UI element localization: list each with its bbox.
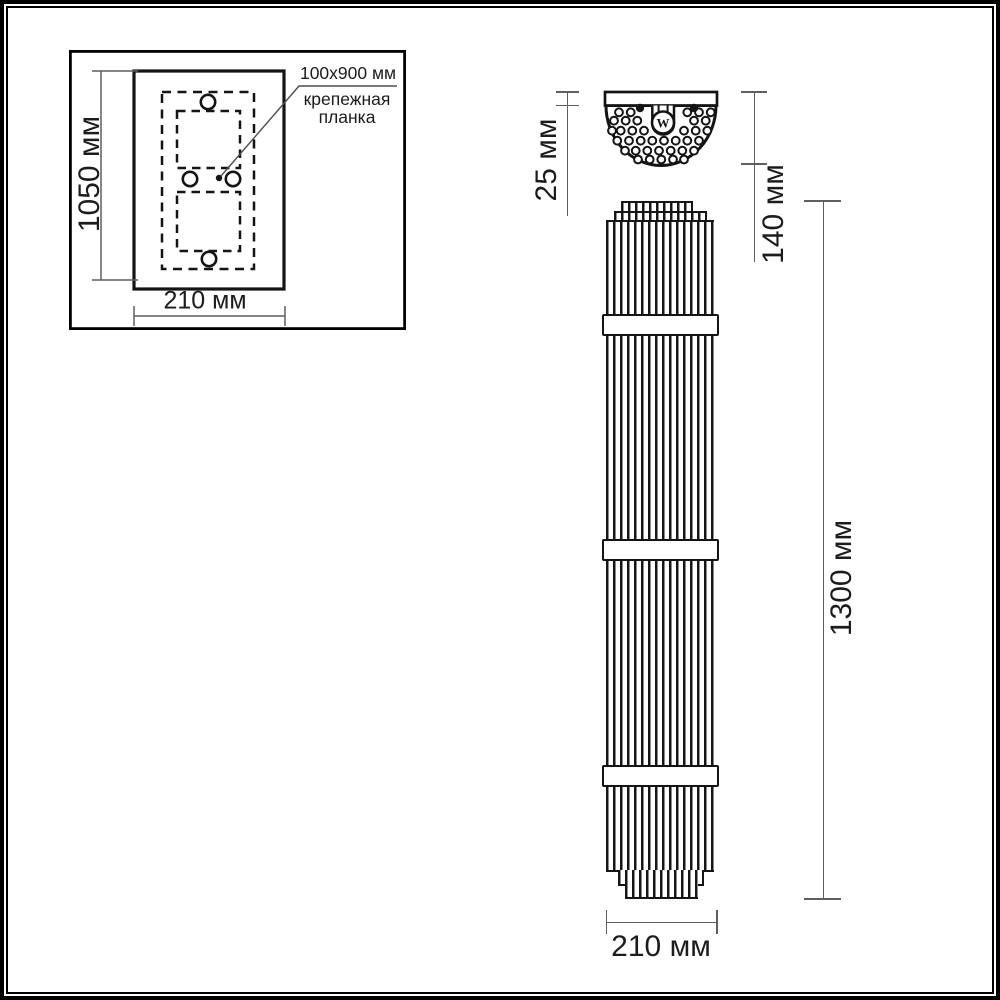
dim-210-line [606,922,718,924]
mounting-hole-top [201,95,215,109]
technical-drawing-canvas: 1050 мм 210 мм 100x900 мм крепежная план… [0,0,1000,1000]
bracket-wall-bar [605,92,717,106]
manufacturer-emblem-letter: W [657,116,670,131]
bracket-top-view-drawing: W [554,84,774,176]
callout-size-label: 100x900 мм [300,64,396,82]
dim-25-line [567,92,569,216]
rod-tier-bottom-2 [625,884,698,899]
callout-name-line2: планка [304,108,391,126]
dim-25-label: 25 мм [530,119,564,202]
screw-right [690,104,698,112]
dim-140-tick-top [741,91,767,93]
dim-1300-line [823,201,825,899]
mounting-hole-middle-right [226,172,240,186]
dim-1300-tick-top [804,200,841,202]
inset-height-label: 1050 мм [73,116,107,232]
band-middle [602,539,719,561]
band-upper [602,314,719,336]
dim-210-tick-right [716,910,718,934]
inset-width-label: 210 мм [163,287,246,316]
dim-210-label: 210 мм [611,930,711,964]
band-lower [602,765,719,787]
mounting-hole-middle-left [183,172,197,186]
dim-140-label: 140 мм [757,164,791,264]
dim-25-tick-top [556,91,579,93]
mounting-hole-bottom [202,252,216,266]
dim-210-tick-left [606,910,608,934]
dim-140-line [754,92,756,262]
callout-name-label: крепежная планка [304,90,391,126]
dim-25-tick-bottom [556,105,579,107]
dim-1300-tick-bottom [804,898,841,900]
screw-left [636,104,644,112]
dim-1300-label: 1300 мм [825,520,859,636]
callout-name-line1: крепежная [304,90,391,108]
